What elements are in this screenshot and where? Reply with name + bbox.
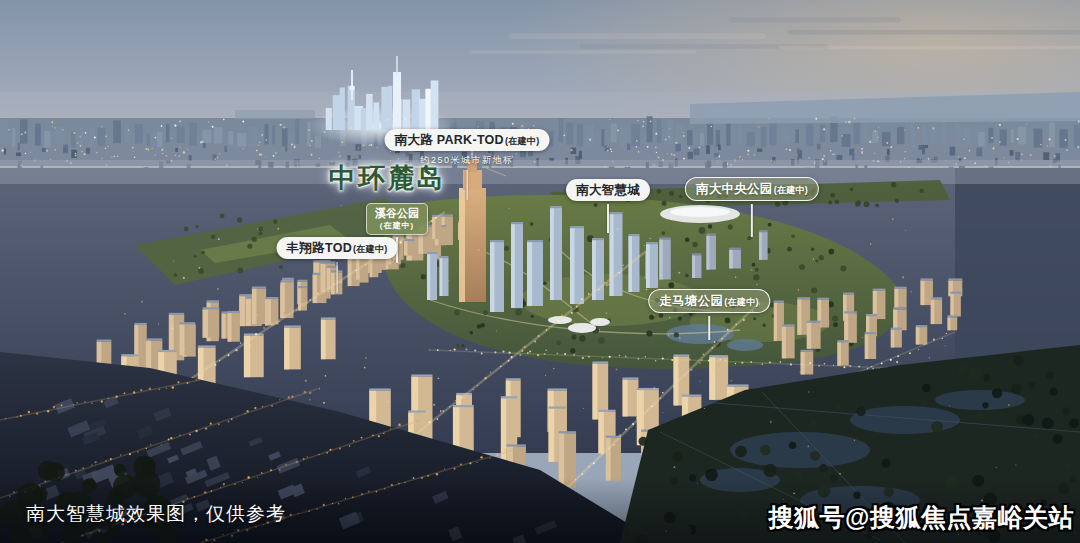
label-status: (在建中) bbox=[774, 185, 809, 195]
leader-line bbox=[336, 262, 338, 293]
label-nanda-central-park: 南大中央公园(在建中) bbox=[685, 177, 819, 237]
sohu-watermark: 搜狐号@搜狐焦点嘉峪关站 bbox=[769, 501, 1074, 534]
label-nanda-road-park-tod-badge: 南大路 PARK-TOD(在建中) bbox=[385, 129, 550, 151]
label-title: 南大路 PARK-TOD bbox=[395, 133, 504, 147]
label-title: 溪谷公园 bbox=[375, 207, 419, 219]
label-status: (在建中) bbox=[353, 244, 388, 254]
label-status: (在建中) bbox=[505, 136, 540, 146]
leader-line bbox=[751, 204, 753, 237]
label-status: (在建中) bbox=[724, 297, 759, 307]
label-status: (在建中) bbox=[375, 221, 419, 232]
label-zoumatang-park-badge: 走马塘公园(在建中) bbox=[648, 289, 770, 313]
render-disclaimer-caption: 南大智慧城效果图，仅供参考 bbox=[26, 501, 286, 527]
label-zhonghuan-island: 中环麓岛 bbox=[329, 160, 445, 196]
label-zoumatang-park: 走马塘公园(在建中) bbox=[648, 289, 770, 340]
label-title: 南大中央公园 bbox=[696, 182, 773, 196]
promo-render: 南大路 PARK-TOD(在建中) 约250米城市新地标 中环麓岛 溪谷公园(在… bbox=[0, 0, 1080, 543]
label-nanda-smart-city-badge: 南大智慧城 bbox=[566, 179, 650, 201]
label-title: 丰翔路TOD bbox=[287, 241, 352, 255]
label-nanda-central-park-badge: 南大中央公园(在建中) bbox=[685, 177, 819, 201]
label-title: 南大智慧城 bbox=[576, 183, 640, 197]
label-xigu-park-badge: 溪谷公园(在建中) bbox=[366, 203, 428, 235]
leader-line bbox=[607, 204, 609, 233]
leader-line bbox=[708, 316, 710, 340]
label-fengxiang-tod: 丰翔路TOD(在建中) bbox=[277, 237, 398, 293]
label-title: 走马塘公园 bbox=[659, 294, 723, 308]
leader-line bbox=[466, 170, 468, 200]
label-nanda-smart-city: 南大智慧城 bbox=[566, 179, 650, 233]
city-aerial-render bbox=[0, 0, 1080, 543]
label-fengxiang-tod-badge: 丰翔路TOD(在建中) bbox=[277, 237, 398, 259]
